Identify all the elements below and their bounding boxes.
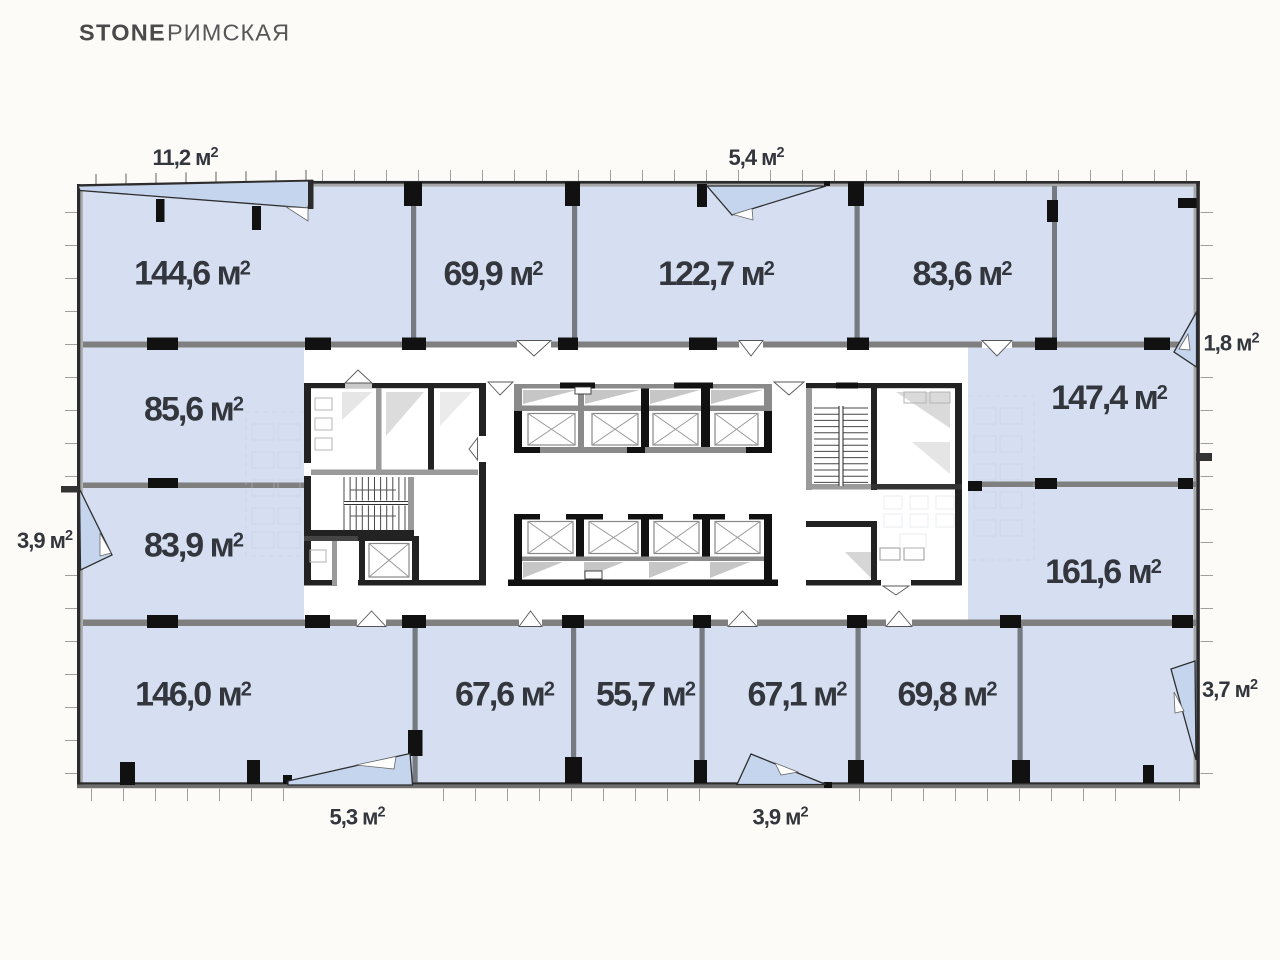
svg-text:147,4 м2: 147,4 м2	[1051, 379, 1168, 417]
svg-text:67,6 м2: 67,6 м2	[455, 676, 555, 714]
svg-text:161,6 м2: 161,6 м2	[1045, 553, 1162, 591]
svg-text:122,7 м2: 122,7 м2	[658, 255, 775, 293]
svg-text:146,0 м2: 146,0 м2	[135, 676, 252, 714]
svg-text:5,4 м2: 5,4 м2	[728, 145, 784, 170]
svg-text:83,6 м2: 83,6 м2	[913, 255, 1013, 293]
svg-text:5,3 м2: 5,3 м2	[329, 805, 385, 830]
svg-text:1,8 м2: 1,8 м2	[1203, 331, 1259, 356]
svg-text:85,6 м2: 85,6 м2	[144, 391, 244, 429]
svg-text:83,9 м2: 83,9 м2	[144, 527, 244, 565]
svg-text:STONE: STONE	[79, 20, 166, 46]
svg-text:144,6 м2: 144,6 м2	[134, 255, 251, 293]
svg-text:11,2 м2: 11,2 м2	[152, 145, 218, 170]
svg-text:3,9 м2: 3,9 м2	[752, 805, 808, 830]
svg-text:69,9 м2: 69,9 м2	[444, 255, 544, 293]
svg-text:55,7 м2: 55,7 м2	[596, 676, 696, 714]
svg-text:69,8 м2: 69,8 м2	[898, 676, 998, 714]
svg-text:67,1 м2: 67,1 м2	[748, 676, 848, 714]
svg-text:РИМСКАЯ: РИМСКАЯ	[167, 20, 290, 46]
svg-text:3,7 м2: 3,7 м2	[1202, 677, 1258, 702]
svg-text:3,9 м2: 3,9 м2	[17, 528, 73, 553]
